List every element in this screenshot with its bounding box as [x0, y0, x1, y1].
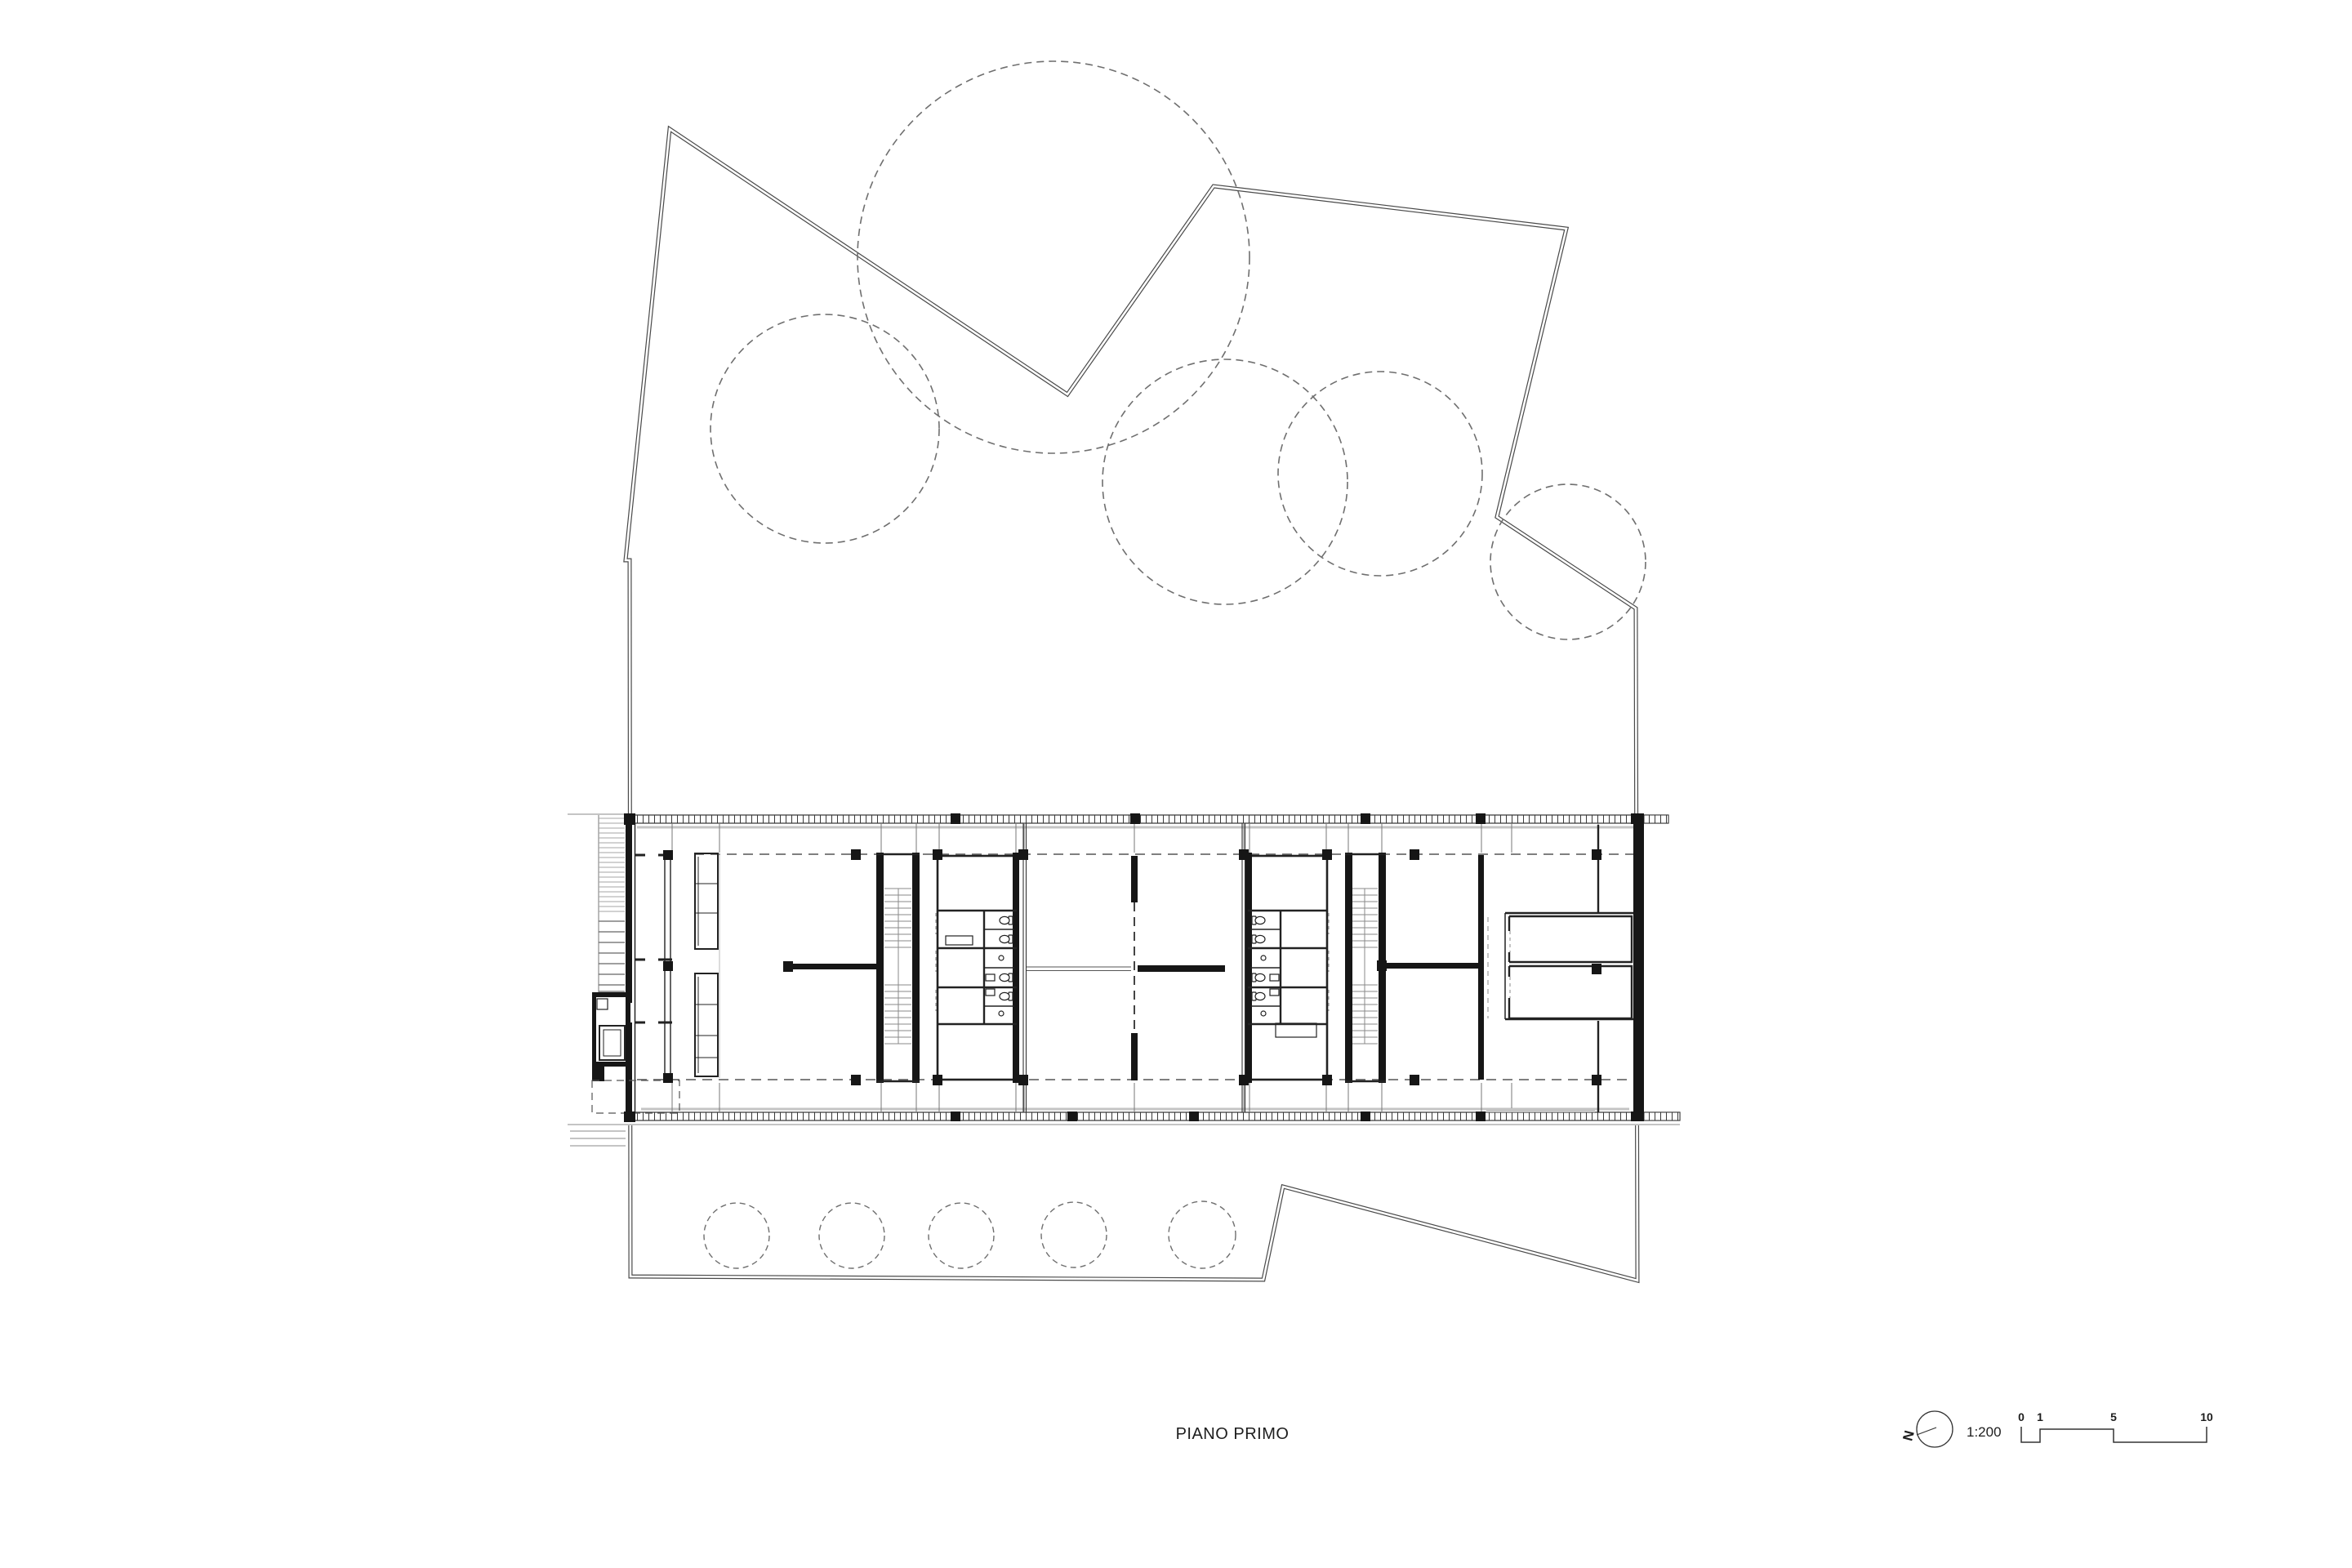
first-floor-plan: PIANO PRIMO N 1:200 0 1 5 10	[0, 0, 2352, 1568]
floor-title: PIANO PRIMO	[1176, 1425, 1290, 1443]
hall-center-wall	[1131, 856, 1138, 902]
hall-east-wall	[1138, 965, 1225, 972]
elevator-shaft	[592, 992, 630, 1081]
toilet-icon	[1000, 973, 1013, 982]
scale-tick-label: 1	[2037, 1410, 2043, 1423]
scale-ratio-label: 1:200	[1967, 1424, 2002, 1440]
shrub-circle	[929, 1203, 994, 1268]
scale-tick-label: 0	[2018, 1410, 2025, 1423]
tree-canopy-circle	[857, 61, 1249, 453]
shrub-row	[704, 1201, 1236, 1268]
toilet-icon	[1252, 935, 1265, 943]
scale-tick-label: 5	[2110, 1410, 2117, 1423]
tree-canopy-circle	[710, 314, 939, 543]
east-terrace-facade	[1644, 815, 1680, 1120]
hall-center-wall	[1131, 1033, 1138, 1080]
shrub-circle	[819, 1203, 884, 1268]
shrub-circle	[1041, 1202, 1107, 1267]
toilet-icon	[1000, 916, 1013, 924]
toilet-icon	[1000, 935, 1013, 943]
north-arrow-icon: N	[1900, 1411, 1953, 1447]
toilet-icon	[1252, 973, 1265, 982]
drawing-sheet: PIANO PRIMO N 1:200 0 1 5 10	[0, 0, 2352, 1568]
scale-bar-icon: 0 1 5 10	[2018, 1410, 2213, 1442]
north-label: N	[1900, 1428, 1918, 1442]
tree-canopy-circle	[1102, 359, 1347, 604]
tree-canopies	[710, 61, 1646, 639]
toilet-icon	[1252, 992, 1265, 1000]
shrub-circle	[704, 1203, 769, 1268]
scale-tick-label: 10	[2200, 1410, 2213, 1423]
tree-canopy-circle	[1278, 372, 1482, 576]
toilet-icon	[1252, 916, 1265, 924]
exterior-stair	[599, 815, 625, 992]
toilet-icon	[1000, 992, 1013, 1000]
building	[568, 813, 1680, 1146]
shrub-circle	[1169, 1201, 1236, 1268]
